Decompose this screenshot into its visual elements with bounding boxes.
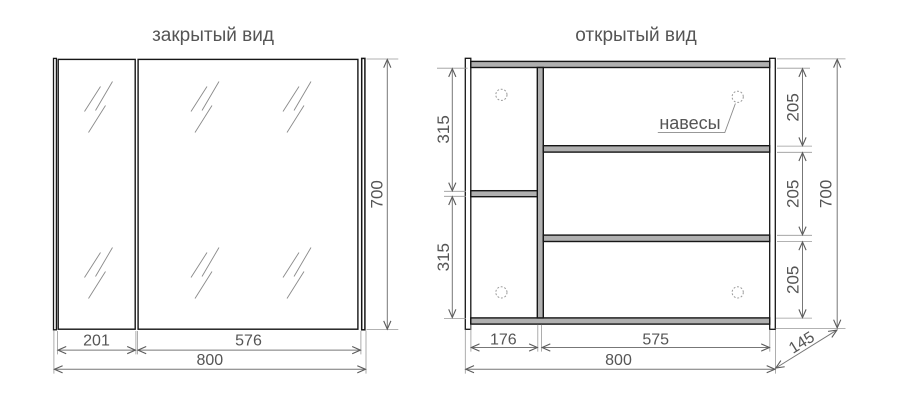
svg-text:700: 700	[816, 180, 835, 208]
svg-text:205: 205	[784, 180, 803, 208]
svg-text:800: 800	[605, 352, 632, 369]
svg-text:навесы: навесы	[659, 113, 720, 133]
svg-text:800: 800	[196, 352, 223, 369]
svg-text:205: 205	[784, 93, 803, 121]
svg-text:315: 315	[434, 243, 453, 271]
svg-text:576: 576	[235, 332, 262, 349]
svg-text:201: 201	[83, 332, 110, 349]
svg-text:205: 205	[784, 266, 803, 294]
svg-text:закрытый вид: закрытый вид	[152, 25, 274, 46]
svg-text:315: 315	[434, 115, 453, 143]
svg-text:176: 176	[490, 332, 517, 349]
svg-text:575: 575	[642, 332, 669, 349]
svg-text:700: 700	[367, 180, 386, 208]
svg-text:открытый вид: открытый вид	[575, 25, 696, 46]
